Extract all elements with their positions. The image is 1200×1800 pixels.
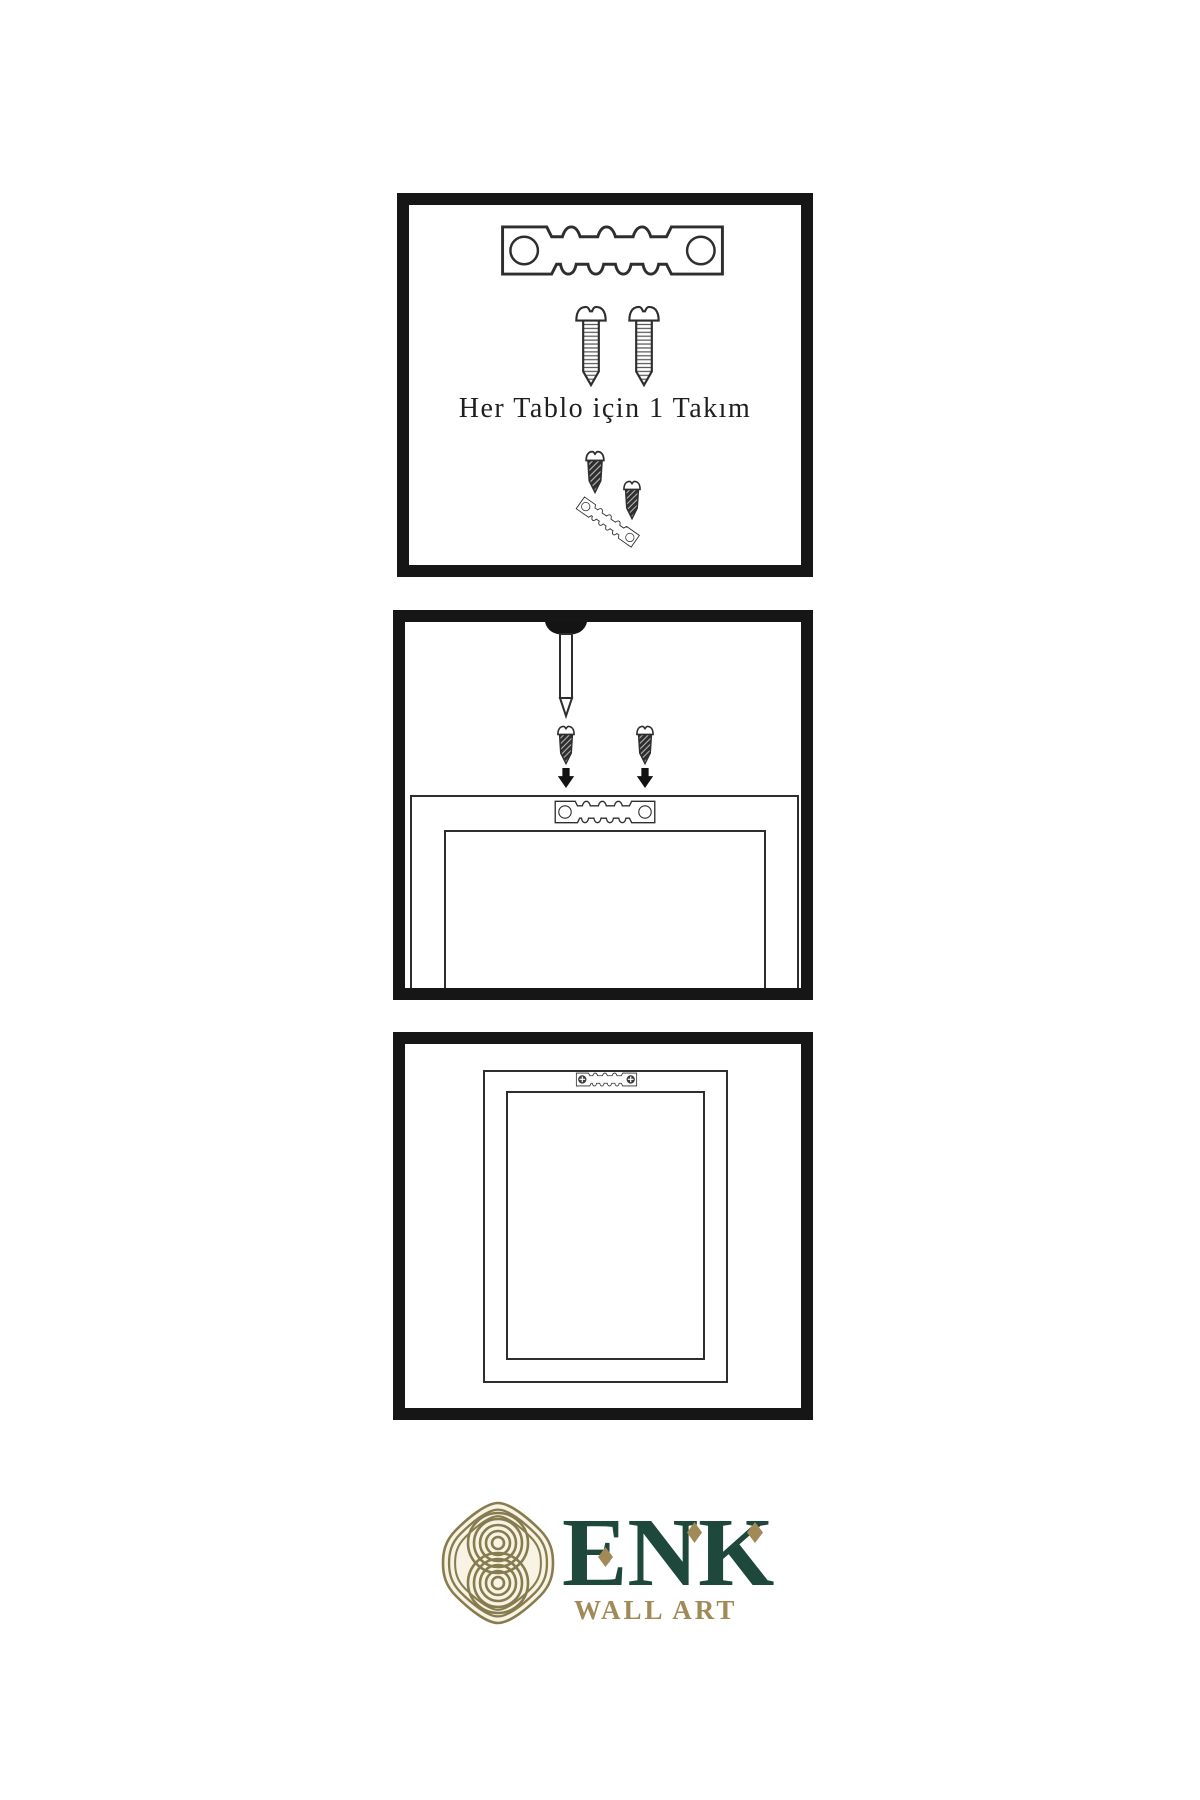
step-3-panel <box>393 1032 813 1420</box>
screw-icon <box>555 724 577 766</box>
wall-nail-icon <box>544 622 588 719</box>
sawtooth-hanger-with-screws-icon <box>575 1072 638 1087</box>
frame-inner-edge <box>444 830 766 988</box>
down-arrow-icon <box>636 768 654 788</box>
brand-name: ENK <box>562 1504 774 1602</box>
knot-icon <box>438 1498 558 1628</box>
set-caption: Her Tablo için 1 Takım <box>409 393 801 425</box>
screw-icon <box>626 303 662 389</box>
frame-inner-edge <box>506 1091 705 1360</box>
down-arrow-icon <box>557 768 575 788</box>
step-1-panel: Her Tablo için 1 Takım <box>397 193 813 577</box>
screw-icon <box>634 724 656 766</box>
sawtooth-hanger-icon <box>553 800 657 824</box>
step-2-panel <box>393 610 813 1000</box>
brand-subtitle: WALL ART <box>574 1597 737 1624</box>
screw-into-hanger-icon <box>572 449 662 561</box>
instruction-sheet: Her Tablo için 1 Takım <box>0 0 1200 1800</box>
screw-icon <box>573 303 609 389</box>
sawtooth-hanger-icon <box>496 224 729 277</box>
brand-logo: ENK WALL ART <box>438 1498 798 1633</box>
